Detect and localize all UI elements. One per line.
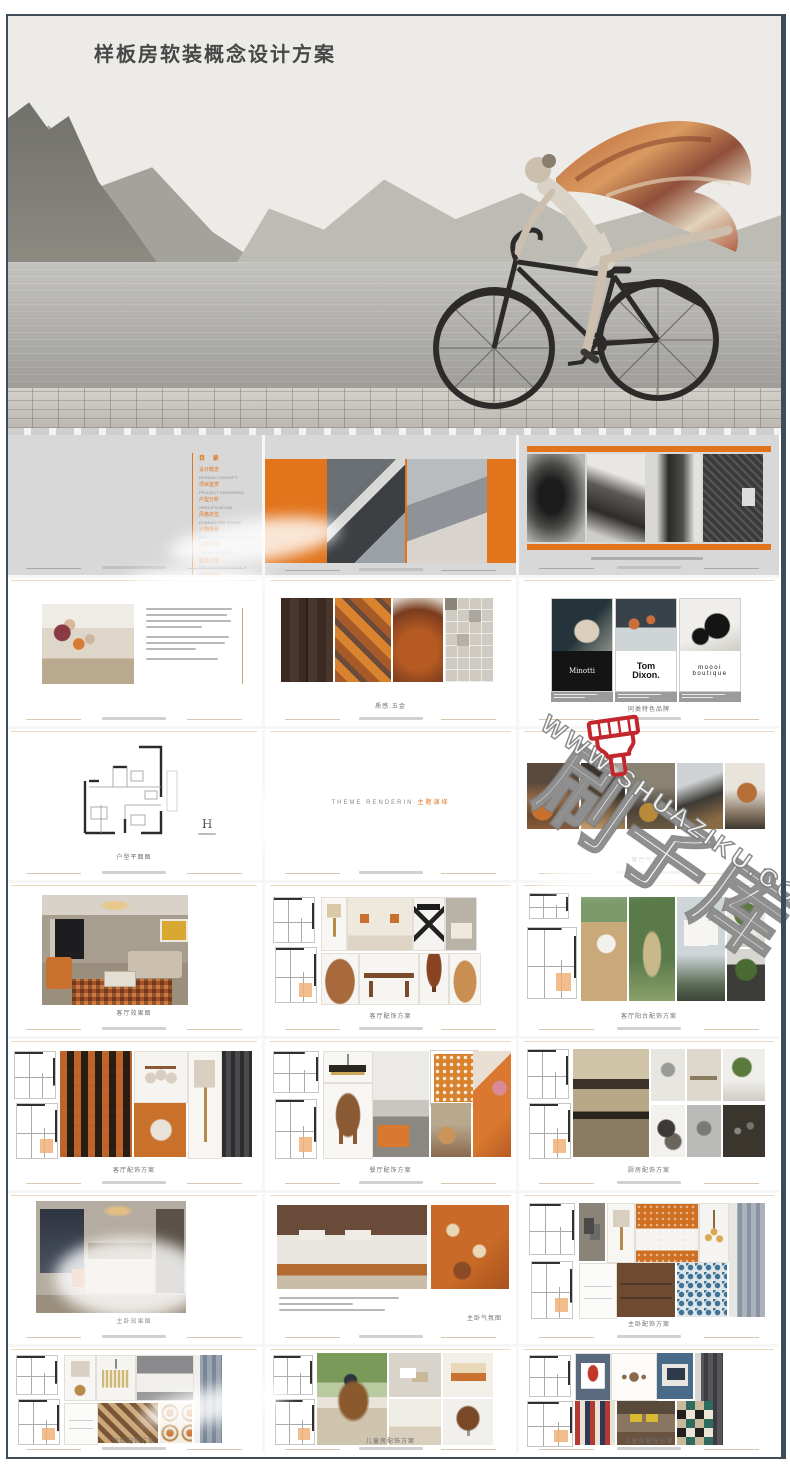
toc-item-zh: 项目鉴赏: [199, 482, 257, 490]
tv-wall: [50, 919, 84, 959]
slide-caption: 客厅效果图: [6, 1008, 262, 1017]
pouf-tile: [321, 953, 359, 1005]
slide-kids-mood: 儿童房配饰方案: [265, 1347, 516, 1453]
floor-plan-thumb: [16, 1355, 58, 1395]
horse-art-tile: [134, 1103, 186, 1157]
plant-box-tile: [723, 1049, 765, 1101]
sofa-tile: [347, 897, 413, 951]
slide-footer: [519, 1444, 779, 1453]
wood-panel-tile: [281, 598, 333, 682]
slide-footer: [265, 565, 516, 574]
bed: [86, 1259, 154, 1293]
restaurant-photo: [431, 1103, 471, 1157]
slide-caption: 客厅配饰方案: [6, 1165, 262, 1174]
slide-dining: 餐厅配饰方案: [265, 1039, 516, 1190]
toc-item-zh: 人物场景: [199, 527, 257, 535]
slide-style-collage: [519, 435, 779, 575]
photo-tile-plaid: [703, 454, 763, 542]
floor-plan-thumb: [273, 897, 315, 943]
chandelier: [102, 1205, 134, 1217]
slide-footer: [265, 1444, 516, 1453]
chandelier: [98, 900, 132, 911]
slide-footer: [265, 1178, 516, 1187]
slide-balcony: 客厅阳台配饰方案: [519, 883, 779, 1036]
slide-caption: 餐厅配饰方案: [265, 1165, 516, 1174]
slide-footer: [6, 1024, 262, 1033]
slide-kids-accessories: 儿童房配饰方案: [519, 1347, 779, 1453]
blue-tile-pattern: [677, 1263, 727, 1317]
family-photo: [42, 604, 134, 684]
brand-photo: [680, 599, 740, 651]
bedroom-mood-photo: [277, 1205, 427, 1289]
armchair-tile: [449, 953, 481, 1005]
floor-plan-thumb: [529, 1355, 571, 1397]
brand-name: Tom Dixon.: [616, 651, 676, 691]
medallion-art-tile: [611, 1353, 657, 1401]
orange-bar: [527, 544, 771, 550]
stair-leather-tile: [335, 598, 391, 682]
slide-caption: 主卧效果图: [6, 1316, 262, 1325]
slide-footer: [265, 1024, 516, 1033]
wall-art: [160, 919, 188, 942]
pots-tile: [651, 1105, 685, 1157]
theme-title-en: THEME RENDERIN: [331, 800, 413, 806]
slide-footer: [519, 563, 779, 572]
photo-tile-horse: [527, 454, 585, 542]
toc-item-en: CHARACTER SCENE: [199, 520, 257, 526]
night-window: [40, 1209, 84, 1273]
brand-name: moooi boutique: [680, 651, 740, 691]
fabric-swatch-tile: [445, 598, 493, 682]
toc-item-zh: 设计概念: [199, 467, 257, 475]
floor-plan-thumb: [529, 1203, 575, 1255]
curtain-tile: [194, 1355, 222, 1443]
kitchen-photo: [573, 1049, 649, 1157]
toc-item-en: DESIGN CONCEPT: [199, 475, 257, 481]
utensils-tile: [651, 1049, 685, 1101]
template-preview-image[interactable]: 样板房软装概念设计方案 目 录 设计概念DESIGN CONCEPT项目鉴赏PR…: [0, 0, 790, 1471]
slide-master-mood: 主卧气氛图: [265, 1193, 516, 1344]
leather-goods-tile: [393, 598, 443, 682]
stool-tile: [413, 897, 445, 951]
slide-footer: [6, 1332, 262, 1341]
photo-tile-suit: [647, 454, 701, 542]
slide-bedroom2: 次卧配饰方案: [6, 1347, 262, 1453]
photo-tile-gown: [587, 454, 645, 542]
lanterns-photo: [677, 897, 725, 1001]
plan-logo: H: [202, 817, 212, 831]
orange-bed-tile: [635, 1203, 699, 1263]
mood-text-block: [279, 1297, 399, 1315]
chandelier-tile: [699, 1203, 729, 1263]
napkin-photo: [473, 1051, 511, 1157]
crystal-chandelier-tile: [96, 1355, 136, 1401]
slide-materials: 质感.五金: [265, 578, 516, 726]
page-title: 样板房软装概念设计方案: [94, 38, 336, 67]
intro-text-block: [146, 608, 243, 684]
lamp-tile: [321, 897, 347, 951]
slide-caption: 质感.五金: [265, 701, 516, 710]
brand-photo: [552, 599, 612, 651]
curtain-tile: [729, 1203, 765, 1317]
slide-footer: [6, 1178, 262, 1187]
floor-plan-thumb: [275, 1099, 317, 1159]
bar-tile: [723, 1105, 765, 1157]
brand-name: Minotti: [552, 651, 612, 691]
pendant-tile: [323, 1051, 373, 1083]
slide-footer: [265, 1332, 516, 1341]
cyclist-illustration: [406, 100, 766, 428]
slide-caption: 主卧气氛图: [467, 1313, 502, 1322]
brand-caption-bar: [551, 692, 613, 702]
slide-footer: [6, 714, 262, 723]
toc-item-en: STYLE POSITION KEYNOTE: [199, 535, 257, 541]
slide-footer: [6, 868, 262, 877]
slide-brands: Minotti Tom Dixon. moooi boutique 同类特色品牌: [519, 578, 779, 726]
appliance-tile: [687, 1105, 721, 1157]
toc-item-en: PROJECT RENDERED: [199, 490, 257, 496]
toc-item-zh: 户型分析: [199, 497, 257, 505]
shelf-tile: [687, 1049, 721, 1101]
toc-title: 目 录: [199, 453, 257, 462]
hero-cover: 样板房软装概念设计方案: [6, 14, 785, 428]
pillow-pile-tile: [443, 1353, 493, 1397]
slide-footer: [265, 868, 516, 877]
floor-lamp-tile: [188, 1051, 222, 1159]
slide-caption: 客厅阳台配饰方案: [519, 1011, 779, 1020]
photo-tile: [725, 763, 765, 829]
toc-item-en: SPECIFICATION: [199, 505, 257, 511]
brand-card-moooi: moooi boutique: [679, 598, 741, 692]
living-room-photo: [42, 895, 188, 1005]
slide-footer: [6, 563, 262, 572]
toc-list: 目 录 设计概念DESIGN CONCEPT项目鉴赏PROJECT RENDER…: [192, 453, 257, 575]
slide-living-soft: 客厅配饰方案: [6, 1039, 262, 1190]
slide-footer: [6, 1444, 262, 1453]
slide-caption: 户型平面图: [6, 852, 262, 861]
theme-title-zh: 主题演绎: [418, 800, 450, 806]
topiary-photo: [727, 897, 765, 947]
brand-card-tomdixon: Tom Dixon.: [615, 598, 677, 692]
slide-caption: 主卧配饰方案: [519, 1319, 779, 1328]
pillow-art-tile: [389, 1353, 441, 1397]
theme-title: THEME RENDERIN·主题演绎: [265, 797, 516, 806]
nightstand-orange: [72, 1269, 84, 1287]
curtain-tile: [222, 1051, 252, 1157]
photo-tile: [407, 459, 487, 563]
slide-lifestyle: [6, 578, 262, 726]
brand-photo: [616, 599, 676, 651]
armchair-orange: [46, 957, 72, 989]
car-art-tile: [575, 1353, 611, 1401]
dresser-tile: [617, 1263, 675, 1317]
floor-plan-thumb: [527, 1049, 569, 1099]
floor-plan-thumb: [529, 893, 569, 919]
slide-concept-photos: [265, 435, 516, 575]
slide-floorplan: H 户型平面图: [6, 729, 262, 880]
slide-master-render: 主卧效果图: [6, 1193, 262, 1344]
honeycomb-art-tile: [431, 1051, 477, 1105]
chandelier-tile: [134, 1051, 188, 1103]
slide-master-accessories: 主卧配饰方案: [519, 1193, 779, 1344]
slide-caption: 客厅气氛图: [519, 855, 779, 864]
slide-living-accessories: 客厅配饰方案: [265, 883, 516, 1036]
wardrobe: [156, 1209, 184, 1293]
floor-plan-thumb: [527, 927, 577, 999]
console-tile: [359, 953, 419, 1005]
slide-theme-divider: THEME RENDERIN·主题演绎: [265, 729, 516, 880]
toc-item-zh: 主题演绎: [199, 542, 257, 550]
slide-footer: [519, 1178, 779, 1187]
floor: [36, 1295, 186, 1313]
chair-tile: [323, 1083, 373, 1159]
slide-caption: 客厅配饰方案: [265, 1011, 516, 1020]
carpet-swatch: [60, 1051, 132, 1157]
fabric-art-tile: [431, 1205, 509, 1289]
toc-item-en: THEME BOARDS: [199, 550, 257, 556]
bedroom-photo: [36, 1201, 186, 1313]
lamp-tile: [607, 1203, 635, 1263]
photo-tile: [527, 763, 579, 829]
headboard: [88, 1243, 152, 1259]
plan-logo-subtext: [198, 833, 216, 835]
floor-plan-thumb: [273, 1051, 319, 1093]
coffee-table: [104, 971, 136, 987]
slide-toc: 目 录 设计概念DESIGN CONCEPT项目鉴赏PROJECT RENDER…: [6, 435, 262, 575]
frames-tile: [579, 1203, 605, 1261]
floor-plan-thumb: [275, 947, 317, 1003]
slide-footer: [265, 714, 516, 723]
brand-caption-bar: [615, 692, 677, 702]
gray-bed-tile: [136, 1355, 194, 1401]
brand-card-minotti: Minotti: [551, 598, 613, 692]
slide-living-render: 客厅效果图: [6, 883, 262, 1036]
brush-logo-icon: [580, 709, 660, 782]
toc-item-zh: 空间设计: [199, 573, 257, 575]
lamp-tile: [64, 1355, 96, 1401]
slide-footer: [519, 1332, 779, 1341]
nightstand-tile: [579, 1263, 617, 1319]
balcony-photo: [581, 897, 627, 1001]
planter-photo: [727, 949, 765, 1001]
floor-plan-drawing: [61, 741, 191, 845]
photo-tile: [327, 459, 405, 563]
orange-bar: [527, 446, 771, 452]
horse-jump-photo: [317, 1353, 387, 1445]
floor-plan-thumb: [529, 1103, 571, 1159]
car-painting-tile: [657, 1353, 693, 1399]
toc-item-zh: 风格定位: [199, 512, 257, 520]
floor-plan-thumb: [273, 1355, 313, 1395]
floor-plan-thumb: [14, 1051, 56, 1099]
slide-grid: 目 录 设计概念DESIGN CONCEPT项目鉴赏PROJECT RENDER…: [6, 435, 779, 1453]
slide-footer: [519, 1024, 779, 1033]
hanging-basket-photo: [629, 897, 675, 1001]
floor-plan-thumb: [531, 1261, 573, 1319]
floor-plan-thumb: [16, 1103, 58, 1159]
island-photo: [373, 1051, 429, 1157]
caption-line: [591, 557, 703, 560]
sofa: [128, 951, 182, 978]
thumbnail-strip: [6, 428, 785, 435]
photo-tile: [677, 763, 723, 829]
brand-caption-bar: [679, 692, 741, 702]
slide-footer: [519, 868, 779, 877]
photo-tile: [445, 897, 477, 951]
side-table-tile: [419, 953, 449, 1005]
slide-caption: 厨房配饰方案: [519, 1165, 779, 1174]
slide-kitchen: 厨房配饰方案: [519, 1039, 779, 1190]
